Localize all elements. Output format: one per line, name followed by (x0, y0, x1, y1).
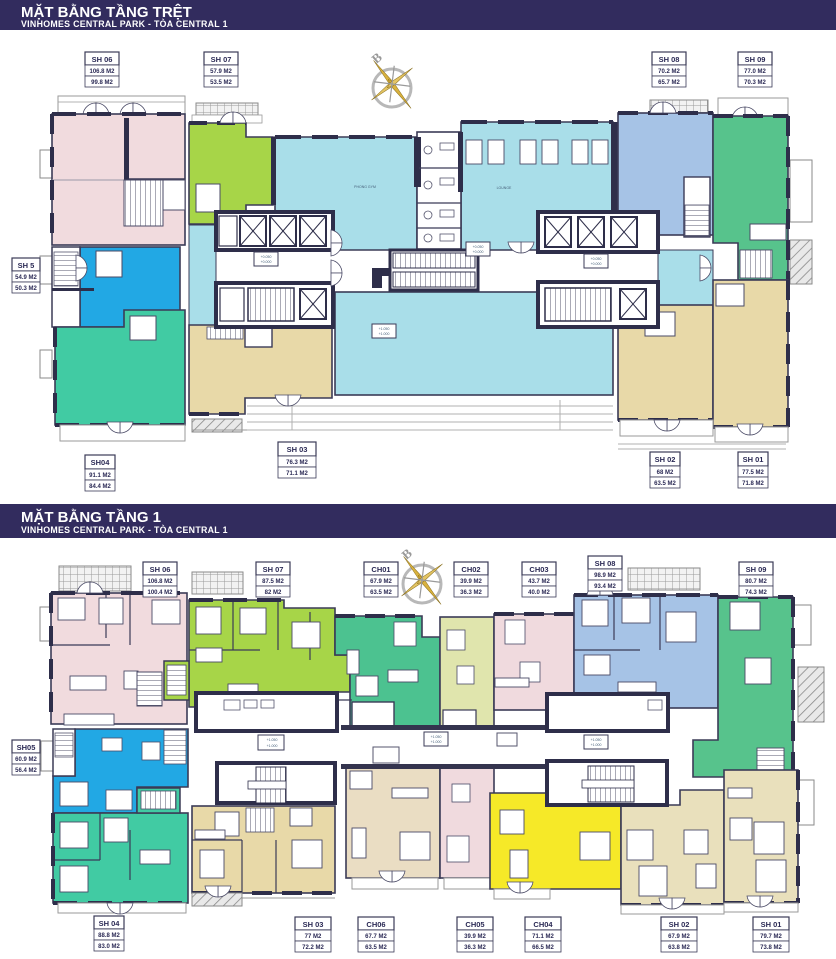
svg-text:79.7 M2: 79.7 M2 (760, 934, 782, 940)
svg-text:SH 03: SH 03 (287, 445, 308, 454)
svg-text:56.4 M2: 56.4 M2 (15, 768, 37, 774)
svg-text:63.5 M2: 63.5 M2 (365, 945, 387, 951)
svg-text:36.3 M2: 36.3 M2 (460, 590, 482, 596)
svg-text:71.8 M2: 71.8 M2 (742, 481, 764, 487)
svg-text:SH 09: SH 09 (746, 565, 767, 574)
svg-text:+1.050: +1.050 (591, 738, 602, 742)
svg-text:99.8 M2: 99.8 M2 (91, 80, 113, 86)
svg-text:CH03: CH03 (529, 565, 548, 574)
svg-text:VINHOMES CENTRAL PARK - TÒA CE: VINHOMES CENTRAL PARK - TÒA CENTRAL 1 (21, 18, 228, 29)
svg-text:+1.050: +1.050 (431, 735, 442, 739)
svg-text:VINHOMES CENTRAL PARK - TÒA CE: VINHOMES CENTRAL PARK - TÒA CENTRAL 1 (21, 524, 228, 535)
svg-text:+1.000: +1.000 (591, 743, 602, 747)
svg-text:SH 01: SH 01 (761, 920, 782, 929)
svg-text:SH 07: SH 07 (211, 55, 232, 64)
svg-text:CH05: CH05 (465, 920, 484, 929)
svg-text:63.5 M2: 63.5 M2 (654, 481, 676, 487)
svg-text:SH 06: SH 06 (92, 55, 113, 64)
svg-text:LOUNGE: LOUNGE (497, 186, 512, 190)
svg-text:83.0 M2: 83.0 M2 (98, 944, 120, 950)
svg-text:73.8 M2: 73.8 M2 (760, 945, 782, 951)
svg-text:PHONG GYM: PHONG GYM (354, 185, 376, 189)
svg-text:77.5 M2: 77.5 M2 (742, 470, 764, 476)
svg-text:SH 08: SH 08 (595, 559, 616, 568)
svg-text:76.3 M2: 76.3 M2 (286, 460, 308, 466)
svg-text:SH 03: SH 03 (303, 920, 324, 929)
svg-text:106.8 M2: 106.8 M2 (147, 579, 173, 585)
svg-text:CH02: CH02 (461, 565, 480, 574)
svg-text:40.0 M2: 40.0 M2 (528, 590, 550, 596)
svg-text:CH01: CH01 (371, 565, 390, 574)
svg-text:SH 09: SH 09 (745, 55, 766, 64)
svg-text:+0.050: +0.050 (261, 255, 272, 259)
svg-text:77 M2: 77 M2 (305, 934, 322, 940)
svg-text:66.5 M2: 66.5 M2 (532, 945, 554, 951)
svg-text:+0.000: +0.000 (261, 260, 272, 264)
svg-text:98.9 M2: 98.9 M2 (594, 573, 616, 579)
svg-text:63.8 M2: 63.8 M2 (668, 945, 690, 951)
svg-text:+0.050: +0.050 (473, 245, 484, 249)
svg-text:82 M2: 82 M2 (265, 590, 282, 596)
svg-text:+0.000: +0.000 (591, 262, 602, 266)
svg-text:SH 02: SH 02 (655, 455, 676, 464)
svg-text:57.9 M2: 57.9 M2 (210, 69, 232, 75)
svg-text:70.2 M2: 70.2 M2 (658, 69, 680, 75)
svg-text:SH05: SH05 (17, 743, 36, 752)
svg-text:SH 07: SH 07 (263, 565, 284, 574)
svg-text:67.9 M2: 67.9 M2 (668, 934, 690, 940)
svg-text:60.9 M2: 60.9 M2 (15, 757, 37, 763)
svg-text:74.3 M2: 74.3 M2 (745, 590, 767, 596)
svg-text:72.2 M2: 72.2 M2 (302, 945, 324, 951)
svg-text:SH 01: SH 01 (743, 455, 764, 464)
svg-text:SH 08: SH 08 (659, 55, 680, 64)
svg-text:91.1 M2: 91.1 M2 (89, 473, 111, 479)
svg-text:80.7 M2: 80.7 M2 (745, 579, 767, 585)
svg-text:100.4 M2: 100.4 M2 (147, 590, 173, 596)
svg-text:67.9 M2: 67.9 M2 (370, 579, 392, 585)
svg-text:SH 04: SH 04 (99, 919, 121, 928)
svg-text:SH 5: SH 5 (18, 261, 35, 270)
svg-text:+1.000: +1.000 (379, 332, 390, 336)
svg-text:+0.000: +0.000 (473, 250, 484, 254)
svg-text:+1.050: +1.050 (267, 738, 278, 742)
svg-text:+0.050: +0.050 (591, 257, 602, 261)
svg-text:65.7 M2: 65.7 M2 (658, 80, 680, 86)
svg-text:36.3 M2: 36.3 M2 (464, 945, 486, 951)
svg-text:39.9 M2: 39.9 M2 (464, 934, 486, 940)
svg-text:39.9 M2: 39.9 M2 (460, 579, 482, 585)
svg-text:63.5 M2: 63.5 M2 (370, 590, 392, 596)
svg-text:43.7 M2: 43.7 M2 (528, 579, 550, 585)
svg-text:93.4 M2: 93.4 M2 (594, 584, 616, 590)
svg-text:53.5 M2: 53.5 M2 (210, 80, 232, 86)
svg-text:CH04: CH04 (533, 920, 553, 929)
svg-text:54.9 M2: 54.9 M2 (15, 275, 37, 281)
svg-text:SH04: SH04 (91, 458, 111, 467)
svg-text:MẶT BẰNG TẦNG 1: MẶT BẰNG TẦNG 1 (21, 508, 161, 526)
svg-text:+1.000: +1.000 (431, 740, 442, 744)
svg-text:+1.000: +1.000 (267, 744, 278, 748)
svg-text:88.8 M2: 88.8 M2 (98, 933, 120, 939)
svg-text:71.1 M2: 71.1 M2 (286, 471, 308, 477)
svg-text:71.1 M2: 71.1 M2 (532, 934, 554, 940)
svg-text:106.8 M2: 106.8 M2 (89, 69, 115, 75)
svg-text:50.3 M2: 50.3 M2 (15, 286, 37, 292)
svg-text:84.4 M2: 84.4 M2 (89, 484, 111, 490)
svg-text:68 M2: 68 M2 (657, 470, 674, 476)
svg-text:87.5 M2: 87.5 M2 (262, 579, 284, 585)
svg-text:77.0 M2: 77.0 M2 (744, 69, 766, 75)
svg-text:67.7 M2: 67.7 M2 (365, 934, 387, 940)
svg-text:SH 06: SH 06 (150, 565, 171, 574)
svg-text:CH06: CH06 (366, 920, 385, 929)
svg-text:70.3 M2: 70.3 M2 (744, 80, 766, 86)
svg-text:+1.050: +1.050 (379, 327, 390, 331)
svg-text:SH 02: SH 02 (669, 920, 690, 929)
